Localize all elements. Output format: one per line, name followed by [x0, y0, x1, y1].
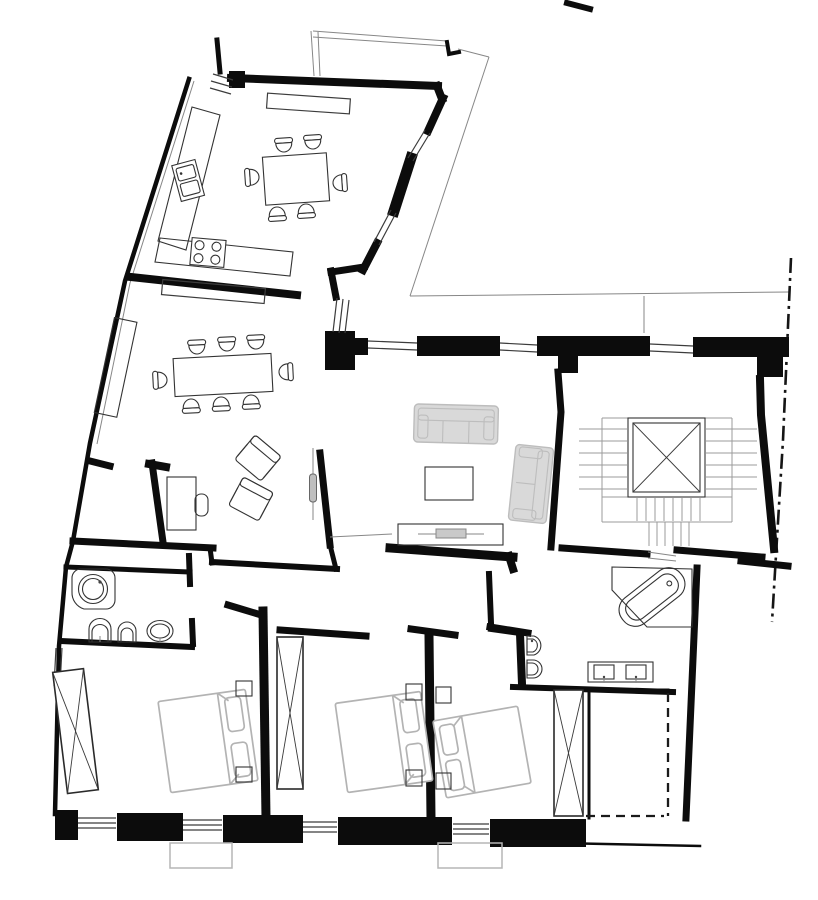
bidet-icon — [527, 660, 542, 678]
elevator-shaft — [628, 418, 705, 497]
floor-plan-drawing — [0, 0, 818, 900]
wardrobe — [53, 669, 99, 794]
console-with-radiator — [398, 524, 503, 545]
wardrobe — [554, 690, 583, 816]
desk — [167, 477, 196, 530]
desk-chair — [195, 494, 208, 516]
floor-plan-page: Black-and-white apartment floor plan: an… — [0, 0, 818, 900]
washbasin-icon — [147, 621, 173, 643]
bathroom-1 — [72, 569, 173, 642]
study — [167, 435, 317, 530]
armchair — [235, 435, 282, 481]
cooktop-icon — [190, 238, 226, 268]
double-bed — [158, 689, 258, 792]
armchair — [228, 477, 273, 521]
bedroom-1 — [53, 669, 258, 794]
toilet-icon — [89, 619, 111, 643]
sofa-3-seat — [414, 404, 499, 444]
bidet-icon — [118, 622, 136, 642]
stairwell — [579, 418, 757, 546]
living-room — [398, 404, 554, 545]
kitchen-wall-cabinet — [267, 93, 351, 114]
dining-room — [94, 280, 293, 418]
bathroom-2 — [527, 562, 692, 683]
stair-treads — [579, 429, 757, 546]
kitchen-sink — [172, 160, 205, 202]
nightstand — [436, 687, 451, 703]
balconies — [170, 843, 502, 868]
kitchen — [155, 93, 350, 276]
bedroom-3 — [433, 687, 583, 816]
kitchen-table — [262, 153, 329, 205]
toilet-icon — [527, 636, 541, 655]
kitchen-chairs — [244, 134, 347, 221]
bedroom-2 — [277, 637, 433, 793]
dining-table — [173, 353, 273, 396]
sofa-2-seat — [508, 444, 554, 524]
wardrobe — [277, 637, 303, 789]
coffee-table — [425, 467, 473, 500]
corner-bathtub-icon — [612, 562, 692, 633]
walk-in-closet — [586, 689, 668, 818]
sliding-door-icon — [310, 448, 317, 520]
double-bed — [335, 691, 433, 792]
double-bed — [433, 706, 531, 798]
corner-shower-icon — [72, 569, 115, 609]
courtyard-outline — [311, 3, 789, 333]
double-vanity — [588, 662, 653, 683]
